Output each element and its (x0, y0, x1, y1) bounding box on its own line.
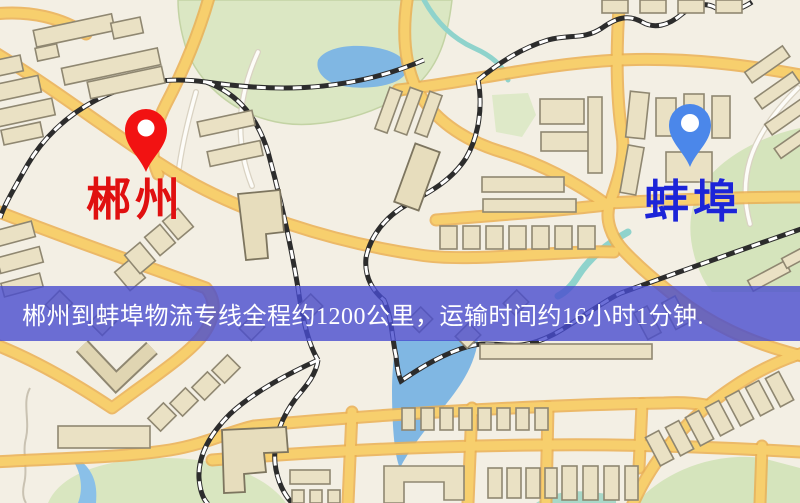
blue-pin-icon (666, 103, 714, 167)
map-canvas[interactable] (0, 0, 800, 503)
destination-marker[interactable] (666, 103, 714, 167)
red-pin-icon (122, 108, 170, 172)
destination-label: 蚌埠 (644, 180, 742, 225)
origin-label: 郴州 (86, 178, 184, 223)
route-info-banner: 郴州到蚌埠物流专线全程约1200公里，运输时间约16小时1分钟. (0, 286, 800, 341)
origin-marker[interactable] (122, 108, 170, 172)
map: 郴州 蚌埠 郴州到蚌埠物流专线全程约1200公里，运输时间约16小时1分钟. (0, 0, 800, 503)
route-info-text: 郴州到蚌埠物流专线全程约1200公里，运输时间约16小时1分钟. (22, 296, 704, 331)
